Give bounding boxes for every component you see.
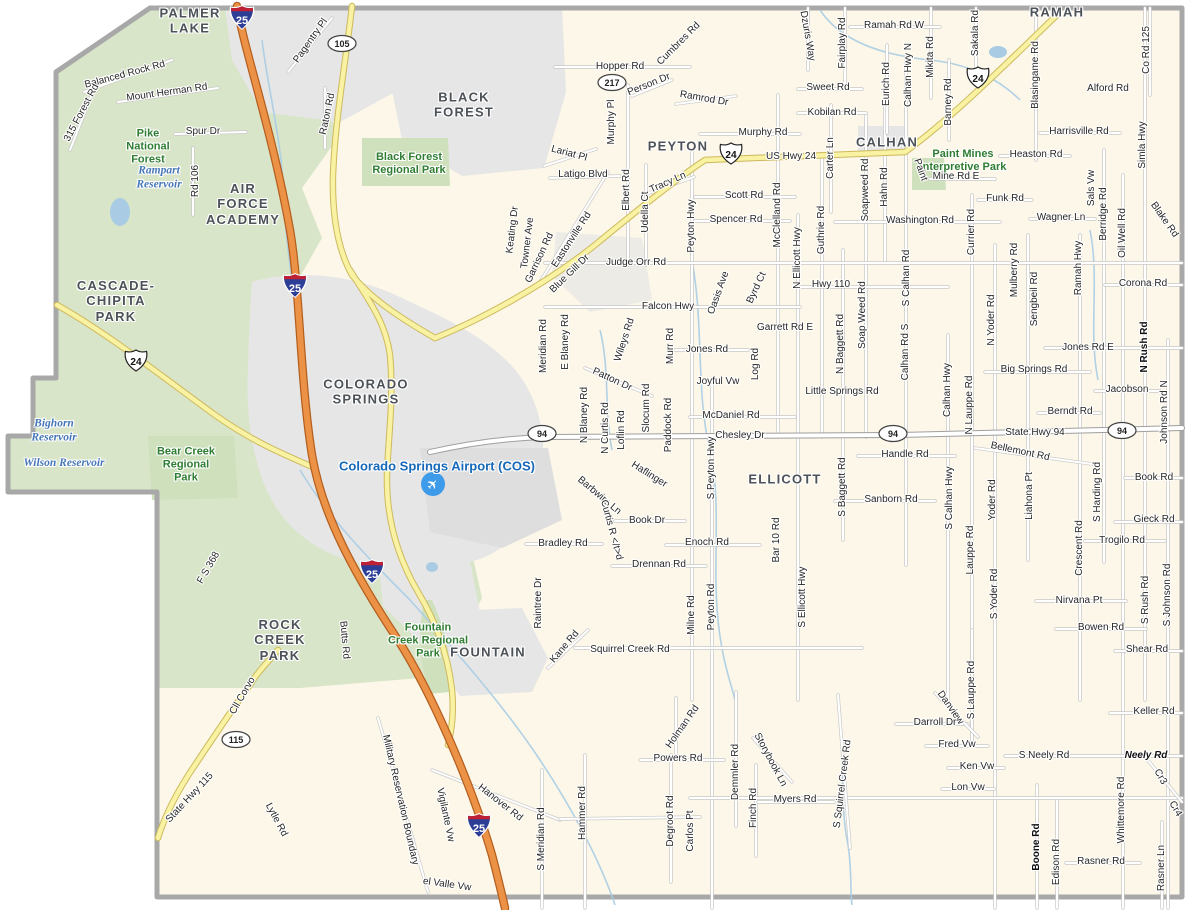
map-label-enoch-rd: Enoch Rd — [685, 537, 729, 549]
map-label-barney-rd: Barney Rd — [943, 78, 955, 125]
map-label-s-meridian-rd: S Meridian Rd — [536, 807, 548, 870]
map-label-rd-106: Rd 106 — [190, 165, 202, 197]
map-label-udella-ct: Udella Ct — [640, 191, 652, 232]
map-label-carlos-pt: Carlos Pt — [685, 810, 697, 851]
sr-217-shield: 217 — [597, 73, 628, 97]
map-label-handle-rd: Handle Rd — [881, 449, 928, 461]
map-label-paint-mines-interpretive-park: Paint Mines Interpretive Park — [920, 148, 1007, 174]
map-label-e-blaney-rd: E Blaney Rd — [560, 314, 572, 370]
map-label-carter-ln: Carter Ln — [825, 137, 837, 179]
map-label-bighorn-reservoir: Bighorn Reservoir — [31, 417, 76, 444]
map-label-keller-rd: Keller Rd — [1133, 706, 1174, 718]
map-label-darroll-dr: Darroll Dr — [914, 717, 957, 729]
map-label-s-rush-rd: S Rush Rd — [1140, 576, 1152, 624]
map-label-bear-creek-regional-park: Bear Creek Regional Park — [157, 446, 215, 485]
map-label-currier-rd: Currier Rd — [966, 209, 978, 255]
map-label-wilson-reservoir: Wilson Reservoir — [23, 457, 104, 471]
map-label-ramah-rd-w: Ramah Rd W — [864, 20, 924, 32]
map-label-berndt-rd: Berndt Rd — [1047, 406, 1092, 418]
i-25-shield: 25 — [359, 559, 386, 590]
map-label-nirvana-pt: Nirvana Pt — [1056, 595, 1103, 607]
map-label-hwy-110: Hwy 110 — [812, 279, 850, 291]
map-label-whittemore-rd: Whittemore Rd — [1116, 777, 1128, 844]
map-label-hammer-rd: Hammer Rd — [577, 786, 589, 840]
map-label-sanborn-rd: Sanborn Rd — [864, 494, 917, 506]
map-label-s-harding-rd: S Harding Rd — [1092, 462, 1104, 522]
map-label-fred-vw: Fred Vw — [938, 739, 975, 751]
map-label-chesley-dr: Chesley Dr — [715, 430, 764, 442]
map-label-trogilo-rd: Trogilo Rd — [1099, 535, 1145, 547]
svg-text:94: 94 — [537, 429, 547, 439]
map-label-little-springs-rd: Little Springs Rd — [805, 386, 878, 398]
map-label-rasner-ln: Rasner Ln — [1156, 845, 1168, 891]
svg-text:24: 24 — [130, 357, 142, 368]
map-label-ken-vw: Ken Vw — [960, 761, 994, 773]
map-label-book-dr: Book Dr — [629, 515, 665, 527]
map-label-yoder-rd: Yoder Rd — [987, 479, 999, 520]
svg-text:94: 94 — [1117, 426, 1127, 436]
map-label-n-blaney-rd: N Blaney Rd — [579, 387, 591, 443]
map-label-wagner-ln: Wagner Ln — [1037, 212, 1086, 224]
map-label-mikita-rd: Mikita Rd — [925, 36, 937, 78]
svg-text:25: 25 — [366, 569, 378, 581]
map-label-spencer-rd: Spencer Rd — [710, 214, 763, 226]
map-label-rock-creek-park: ROCK CREEK PARK — [254, 617, 306, 663]
map-label-joyful-vw: Joyful Vw — [697, 376, 740, 388]
svg-text:25: 25 — [473, 823, 485, 835]
map-label-finch-rd: Finch Rd — [748, 788, 760, 828]
map-label-gieck-rd: Gieck Rd — [1133, 514, 1174, 526]
us-24-shield: 24 — [719, 142, 744, 170]
map-label-corona-rd: Corona Rd — [1119, 278, 1167, 290]
map-label-calhan-hwy-n: Calhan Hwy N — [903, 43, 915, 107]
map-label-palmer-lake: PALMER LAKE — [159, 6, 220, 37]
map-label-lon-vw: Lon Vw — [951, 782, 984, 794]
map-label-mcclelland-rd: McClelland Rd — [772, 182, 784, 247]
map-label-calhan: CALHAN — [856, 134, 918, 149]
map-label-crescent-rd: Crescent Rd — [1074, 520, 1086, 576]
map-label-cascade-chipita-park: CASCADE- CHIPITA PARK — [77, 278, 155, 324]
map-label-s-calhan-rd: S Calhan Rd — [901, 250, 913, 307]
map-label-s-ellicott-hwy: S Ellicott Hwy — [797, 566, 809, 627]
map-label-meridian-rd: Meridian Rd — [538, 319, 550, 373]
map-label-soap-weed-rd: Soap Weed Rd — [857, 281, 869, 349]
map-label-bar-10-rd: Bar 10 Rd — [771, 517, 783, 562]
i-25-shield: 25 — [466, 813, 493, 844]
map-label-sengbeil-rd: Sengbeil Rd — [1029, 272, 1041, 326]
map-label-blasingame-rd: Blasingame Rd — [1030, 41, 1042, 109]
map-label-s-johnson-rd: S Johnson Rd — [1162, 564, 1174, 627]
map-label-garrett-rd-e: Garrett Rd E — [757, 322, 813, 334]
county-road-map: 25252525242424105217115949494✈ PALMER LA… — [0, 0, 1190, 910]
map-label-fairplay-rd: Fairplay Rd — [837, 17, 849, 68]
map-label-milne-rd: Milne Rd — [686, 595, 698, 634]
map-label-berridge-rd: Berridge Rd — [1098, 187, 1110, 240]
map-label-slocum-rd: Slocum Rd — [641, 384, 653, 433]
map-label-co-rd-125: Co Rd 125 — [1141, 26, 1153, 74]
map-label-murr-rd: Murr Rd — [665, 328, 677, 364]
map-label-myers-rd: Myers Rd — [774, 794, 817, 806]
map-label-peyton: PEYTON — [648, 138, 708, 153]
i-25-shield: 25 — [282, 273, 309, 304]
map-label-big-springs-rd: Big Springs Rd — [1001, 364, 1068, 376]
map-label-falcon-hwy: Falcon Hwy — [642, 301, 694, 313]
map-label-n-rush-rd: N Rush Rd — [1139, 321, 1151, 372]
map-label-loflin-rd: Loflin Rd — [616, 410, 628, 449]
airport-icon: ✈ — [421, 472, 445, 496]
svg-text:25: 25 — [289, 283, 301, 295]
map-label-state-hwy-94: State Hwy 94 — [1005, 427, 1064, 439]
map-label-sweet-rd: Sweet Rd — [806, 82, 849, 94]
map-label-washington-rd: Washington Rd — [886, 215, 954, 227]
map-label-mcdaniel-rd: McDaniel Rd — [702, 410, 759, 422]
map-label-murphy-pl: Murphy Pl — [606, 99, 618, 144]
map-label-air-force-academy: AIR FORCE ACADEMY — [206, 181, 280, 227]
map-label-hahn-rd: Hahn Rd — [879, 167, 891, 206]
map-label-guthrie-rd: Guthrie Rd — [816, 206, 828, 254]
map-label-mine-rd-e: Mine Rd E — [933, 171, 980, 183]
map-label-n-baggett-rd: N Baggett Rd — [835, 314, 847, 374]
map-label-log-rd: Log Rd — [750, 348, 762, 380]
map-label-kobilan-rd: Kobilan Rd — [808, 107, 857, 119]
map-label-hopper-rd: Hopper Rd — [596, 61, 644, 73]
us-24-shield: 24 — [966, 66, 991, 94]
map-label-book-rd: Book Rd — [1135, 472, 1173, 484]
map-label-squirrel-creek-rd: Squirrel Creek Rd — [590, 644, 669, 656]
map-label-bowen-rd: Bowen Rd — [1078, 622, 1124, 634]
map-label-s-neely-rd: S Neely Rd — [1019, 750, 1070, 762]
map-label-mulberry-rd: Mulberry Rd — [1009, 243, 1021, 297]
map-label-soapweed-rd: Soapweed Rd — [860, 159, 872, 222]
svg-text:105: 105 — [334, 39, 349, 49]
map-label-scott-rd: Scott Rd — [725, 190, 763, 202]
map-label-edison-rd: Edison Rd — [1051, 839, 1063, 885]
map-label-neely-rd: Neely Rd — [1125, 750, 1168, 762]
map-label-s-calhan-hwy: S Calhan Hwy — [944, 466, 956, 529]
map-label-s-lauppe-rd: S Lauppe Rd — [966, 661, 978, 719]
sr-115-shield: 115 — [221, 730, 252, 754]
map-label-drennan-rd: Drennan Rd — [632, 559, 686, 571]
map-label-paddock-rd: Paddock Rd — [663, 398, 675, 452]
map-label-s-yoder-rd: S Yoder Rd — [989, 569, 1001, 620]
svg-text:115: 115 — [229, 735, 244, 745]
sr-94-shield: 94 — [878, 424, 909, 448]
map-label-ellicott: ELLICOTT — [748, 471, 821, 486]
map-label-jones-rd-e: Jones Rd E — [1062, 342, 1114, 354]
map-label-peyton-hwy: Peyton Hwy — [686, 199, 698, 252]
map-label-shear-rd: Shear Rd — [1126, 644, 1168, 656]
map-label-rasner-rd: Rasner Rd — [1077, 856, 1125, 868]
map-label-elbert-rd: Elbert Rd — [621, 169, 633, 211]
map-label-demmler-rd: Demmler Rd — [730, 744, 742, 800]
us-24-shield: 24 — [124, 349, 149, 377]
map-label-ramah-hwy: Ramah Hwy — [1073, 241, 1085, 295]
map-label-calhan-hwy: Calhan Hwy — [942, 363, 954, 417]
map-label-harrisville-rd: Harrisville Rd — [1049, 126, 1108, 138]
map-label-sals-vw: Sals Vw — [1086, 170, 1098, 206]
map-label-judge-orr-rd: Judge Orr Rd — [606, 257, 666, 269]
map-label-n-yoder-rd: N Yoder Rd — [986, 294, 998, 345]
map-label-n-curtis-rd: N Curtis Rd — [600, 402, 612, 454]
map-label-us-hwy-24: US Hwy 24 — [766, 151, 816, 163]
map-label-colorado-springs: COLORADO SPRINGS — [323, 377, 408, 408]
map-label-black-forest-regional-park: Black Forest Regional Park — [372, 151, 445, 177]
map-label-oil-well-rd: Oil Well Rd — [1117, 208, 1129, 258]
map-label-boone-rd: Boone Rd — [1031, 823, 1043, 870]
sr-94-shield: 94 — [527, 424, 558, 448]
map-label-calhan-rd-s: Calhan Rd S — [900, 324, 912, 381]
map-label-rampart-reservoir: Rampart Reservoir — [136, 164, 181, 191]
map-label-ramah: RAMAH — [1030, 4, 1084, 19]
map-label-n-ellicott-hwy: N Ellicott Hwy — [792, 227, 804, 289]
map-label-bradley-rd: Bradley Rd — [538, 538, 587, 550]
i-25-shield: 25 — [229, 5, 256, 36]
map-label-jacobson: Jacobson — [1106, 384, 1149, 396]
map-label-s-peyton-hwy: S Peyton Hwy — [706, 437, 718, 500]
map-label-lauppe-rd: Lauppe Rd — [965, 526, 977, 575]
map-label-funk-rd: Funk Rd — [986, 193, 1024, 205]
map-label-simla-hwy: Simla Hwy — [1137, 121, 1149, 168]
sr-105-shield: 105 — [327, 34, 358, 58]
map-label-murphy-rd: Murphy Rd — [739, 127, 788, 139]
svg-text:94: 94 — [888, 429, 898, 439]
sr-94-shield: 94 — [1107, 421, 1138, 445]
svg-text:24: 24 — [972, 74, 984, 85]
map-label-spur-dr: Spur Dr — [186, 126, 220, 138]
map-label-n-lauppe-rd: N Lauppe Rd — [964, 376, 976, 435]
svg-text:25: 25 — [236, 15, 248, 27]
map-label-latigo-blvd: Latigo Blvd — [558, 169, 607, 181]
map-label-s-baggett-rd: S Baggett Rd — [837, 457, 849, 516]
map-label-powers-rd: Powers Rd — [654, 753, 703, 765]
map-label-fountain-creek-regional-park: Fountain Creek Regional Park — [388, 622, 468, 661]
map-label-black-forest: BLACK FOREST — [434, 90, 494, 121]
map-label-colorado-springs-airport-cos: Colorado Springs Airport (COS) — [339, 458, 535, 473]
map-label-pike-national-forest: Pike National Forest — [126, 128, 169, 167]
map-label-eurich-rd: Eurich Rd — [881, 62, 893, 106]
map-label-alford-rd: Alford Rd — [1087, 83, 1129, 95]
svg-text:24: 24 — [725, 150, 737, 161]
map-label-liahona-pt: Liahona Pt — [1024, 472, 1036, 520]
map-label-degroot-rd: Degroot Rd — [665, 795, 677, 846]
map-label-peyton-rd: Peyton Rd — [706, 584, 718, 631]
map-label-johnson-rd-n: Johnson Rd N — [1159, 380, 1171, 443]
map-label-heaston-rd: Heaston Rd — [1010, 149, 1063, 161]
svg-text:217: 217 — [604, 78, 619, 88]
map-label-raintree-dr: Raintree Dr — [533, 577, 545, 628]
map-label-sakala-rd: Sakala Rd — [970, 10, 982, 56]
map-label-jones-rd: Jones Rd — [686, 344, 728, 356]
